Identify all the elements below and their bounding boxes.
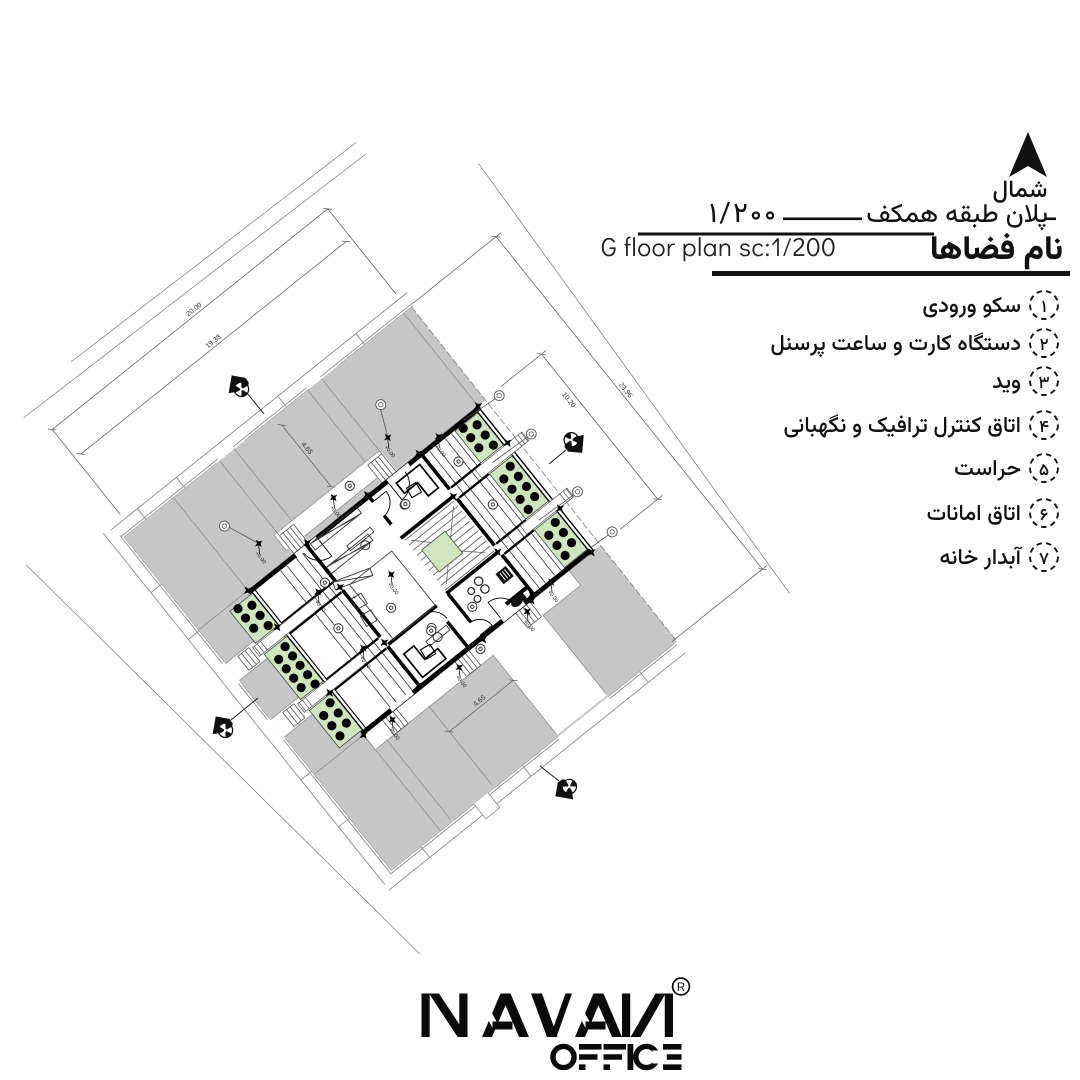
svg-text:R: R xyxy=(677,982,685,994)
